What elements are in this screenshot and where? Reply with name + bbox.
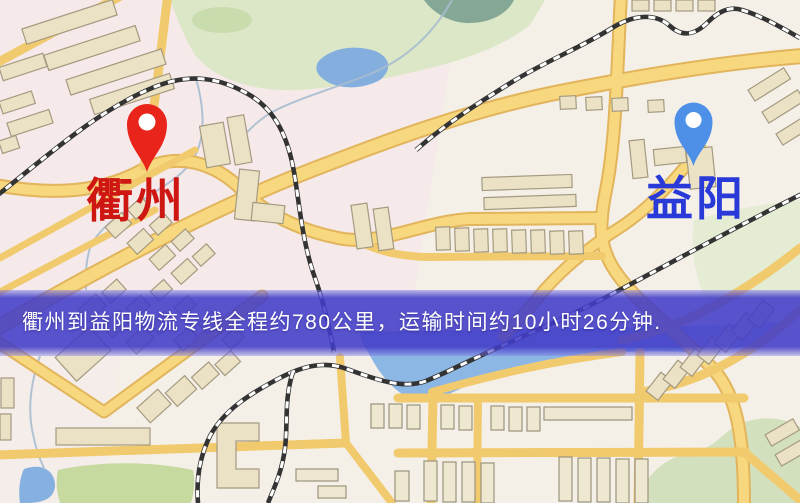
origin-city-label: 衢州 bbox=[86, 178, 186, 225]
map[interactable]: 衢州到益阳物流专线全程约780公里，运输时间约10小时26分钟. 衢州 益阳 bbox=[0, 0, 800, 503]
route-info-text: 衢州到益阳物流专线全程约780公里，运输时间约10小时26分钟. bbox=[22, 290, 662, 356]
destination-city-label: 益阳 bbox=[646, 176, 746, 223]
map-canvas bbox=[0, 0, 800, 503]
field-area bbox=[57, 463, 194, 503]
red-location-pin-icon[interactable] bbox=[123, 100, 171, 174]
route-info-banner: 衢州到益阳物流专线全程约780公里，运输时间约10小时26分钟. bbox=[0, 290, 800, 356]
blue-location-pin-icon[interactable] bbox=[671, 100, 716, 168]
